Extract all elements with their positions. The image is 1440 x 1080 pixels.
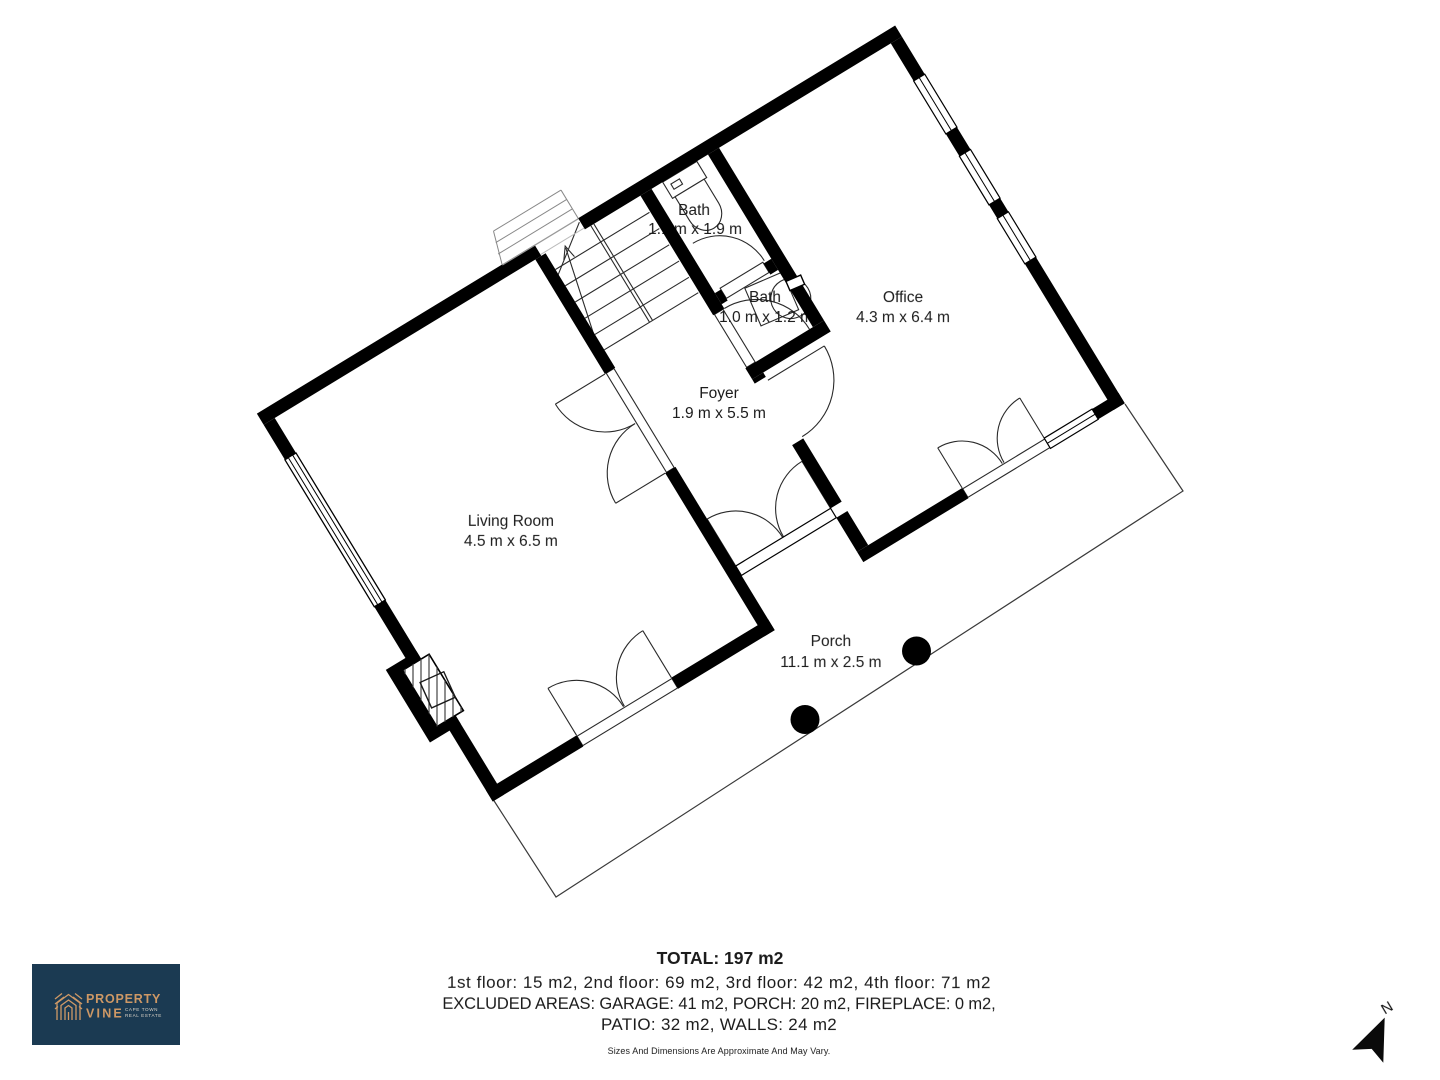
svg-text:Bath: Bath <box>678 202 710 219</box>
svg-text:1.9 m x 5.5 m: 1.9 m x 5.5 m <box>672 405 766 422</box>
svg-text:PROPERTY: PROPERTY <box>86 992 161 1006</box>
svg-text:Foyer: Foyer <box>699 385 739 402</box>
svg-text:TOTAL: 197 m2: TOTAL: 197 m2 <box>657 948 784 968</box>
svg-text:Bath: Bath <box>749 289 781 306</box>
svg-text:4.5 m x 6.5 m: 4.5 m x 6.5 m <box>464 533 558 550</box>
svg-text:REAL ESTATE: REAL ESTATE <box>125 1013 162 1018</box>
svg-text:CAPE TOWN: CAPE TOWN <box>125 1007 158 1012</box>
svg-text:PATIO: 32 m2, WALLS: 24 m2: PATIO: 32 m2, WALLS: 24 m2 <box>601 1015 837 1034</box>
svg-text:Living Room: Living Room <box>468 513 554 530</box>
svg-text:1.0 m x 1.2 m: 1.0 m x 1.2 m <box>719 309 813 326</box>
svg-text:Porch: Porch <box>811 633 852 650</box>
svg-text:Sizes And Dimensions Are Appro: Sizes And Dimensions Are Approximate And… <box>608 1046 831 1056</box>
svg-text:VINE: VINE <box>86 1007 124 1021</box>
svg-text:4.3 m x 6.4 m: 4.3 m x 6.4 m <box>856 309 950 326</box>
svg-text:EXCLUDED AREAS: GARAGE: 41 m2,: EXCLUDED AREAS: GARAGE: 41 m2, PORCH: 20… <box>442 995 995 1013</box>
svg-text:Office: Office <box>883 289 923 306</box>
svg-text:1st floor: 15 m2, 2nd floor: 6: 1st floor: 15 m2, 2nd floor: 69 m2, 3rd … <box>447 973 991 992</box>
svg-text:11.1 m x 2.5 m: 11.1 m x 2.5 m <box>780 654 881 671</box>
